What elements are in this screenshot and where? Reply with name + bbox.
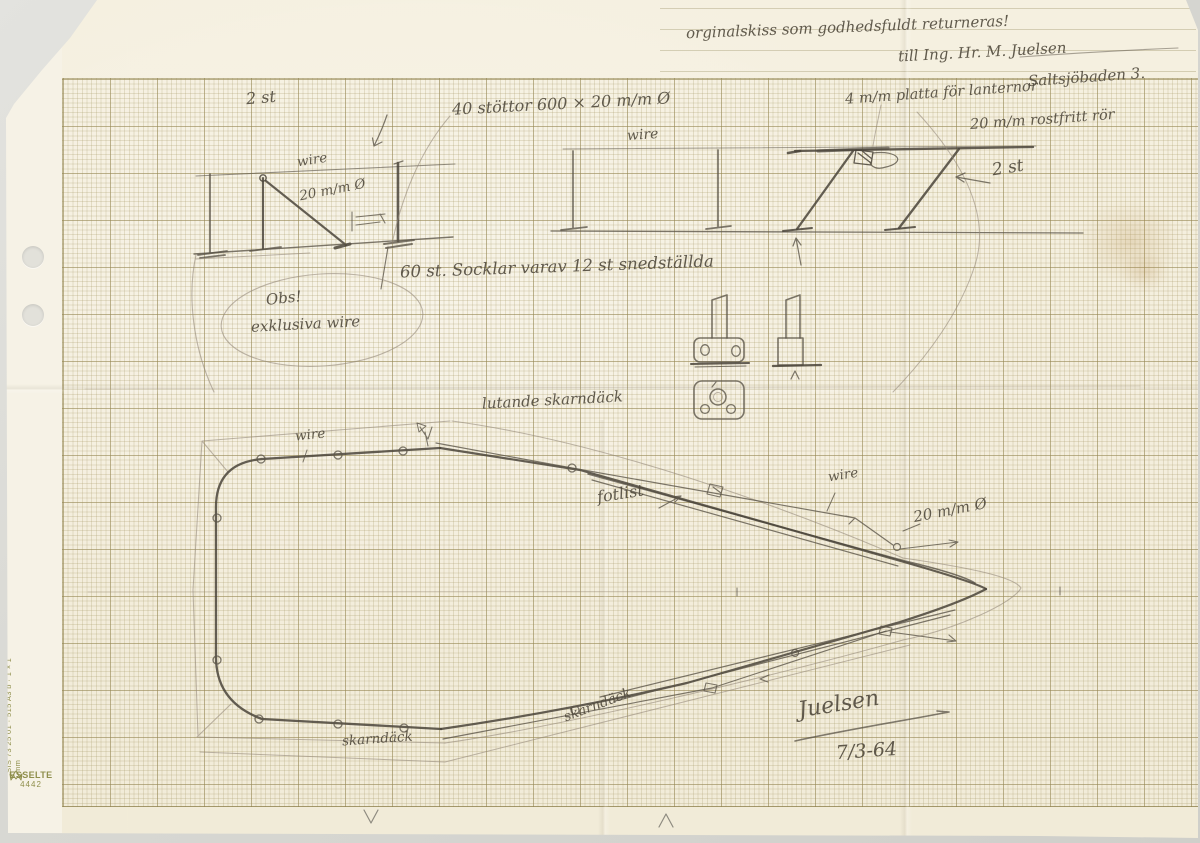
plan-view-sketch xyxy=(88,421,1140,762)
paper-tear-speck xyxy=(13,48,24,60)
label-wire-plan-stern: wire xyxy=(294,426,326,443)
right-elevation-sketch xyxy=(551,105,1083,392)
scanned-sketch-photo: SIS 73 25 01 · 515 A3 b · 1×1 mm ESSELTE… xyxy=(0,0,1200,843)
label-wire-right-elevation: wire xyxy=(627,127,659,144)
signature-date: 7/3-64 xyxy=(835,740,897,764)
socket-detail-sketches xyxy=(691,295,821,419)
label-qty-left: 2 st xyxy=(245,89,276,108)
label-obs-title: Obs! xyxy=(265,289,302,308)
